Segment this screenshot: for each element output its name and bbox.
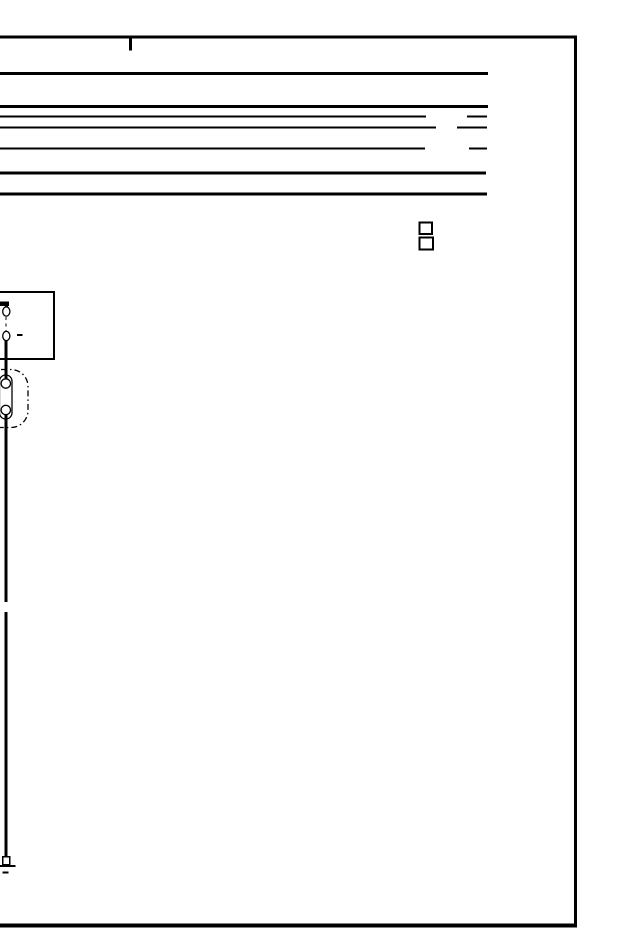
diagram-page <box>0 0 640 950</box>
small-square-top <box>420 223 433 235</box>
ground-terminal-square <box>3 857 10 865</box>
wiring-diagram-canvas <box>0 0 640 950</box>
small-square-bottom <box>420 238 434 250</box>
pin-terminal-top <box>3 307 10 316</box>
connector-terminal-bottom <box>1 405 10 414</box>
connector-terminal-top <box>1 379 10 388</box>
pin-terminal-bottom <box>3 331 10 340</box>
